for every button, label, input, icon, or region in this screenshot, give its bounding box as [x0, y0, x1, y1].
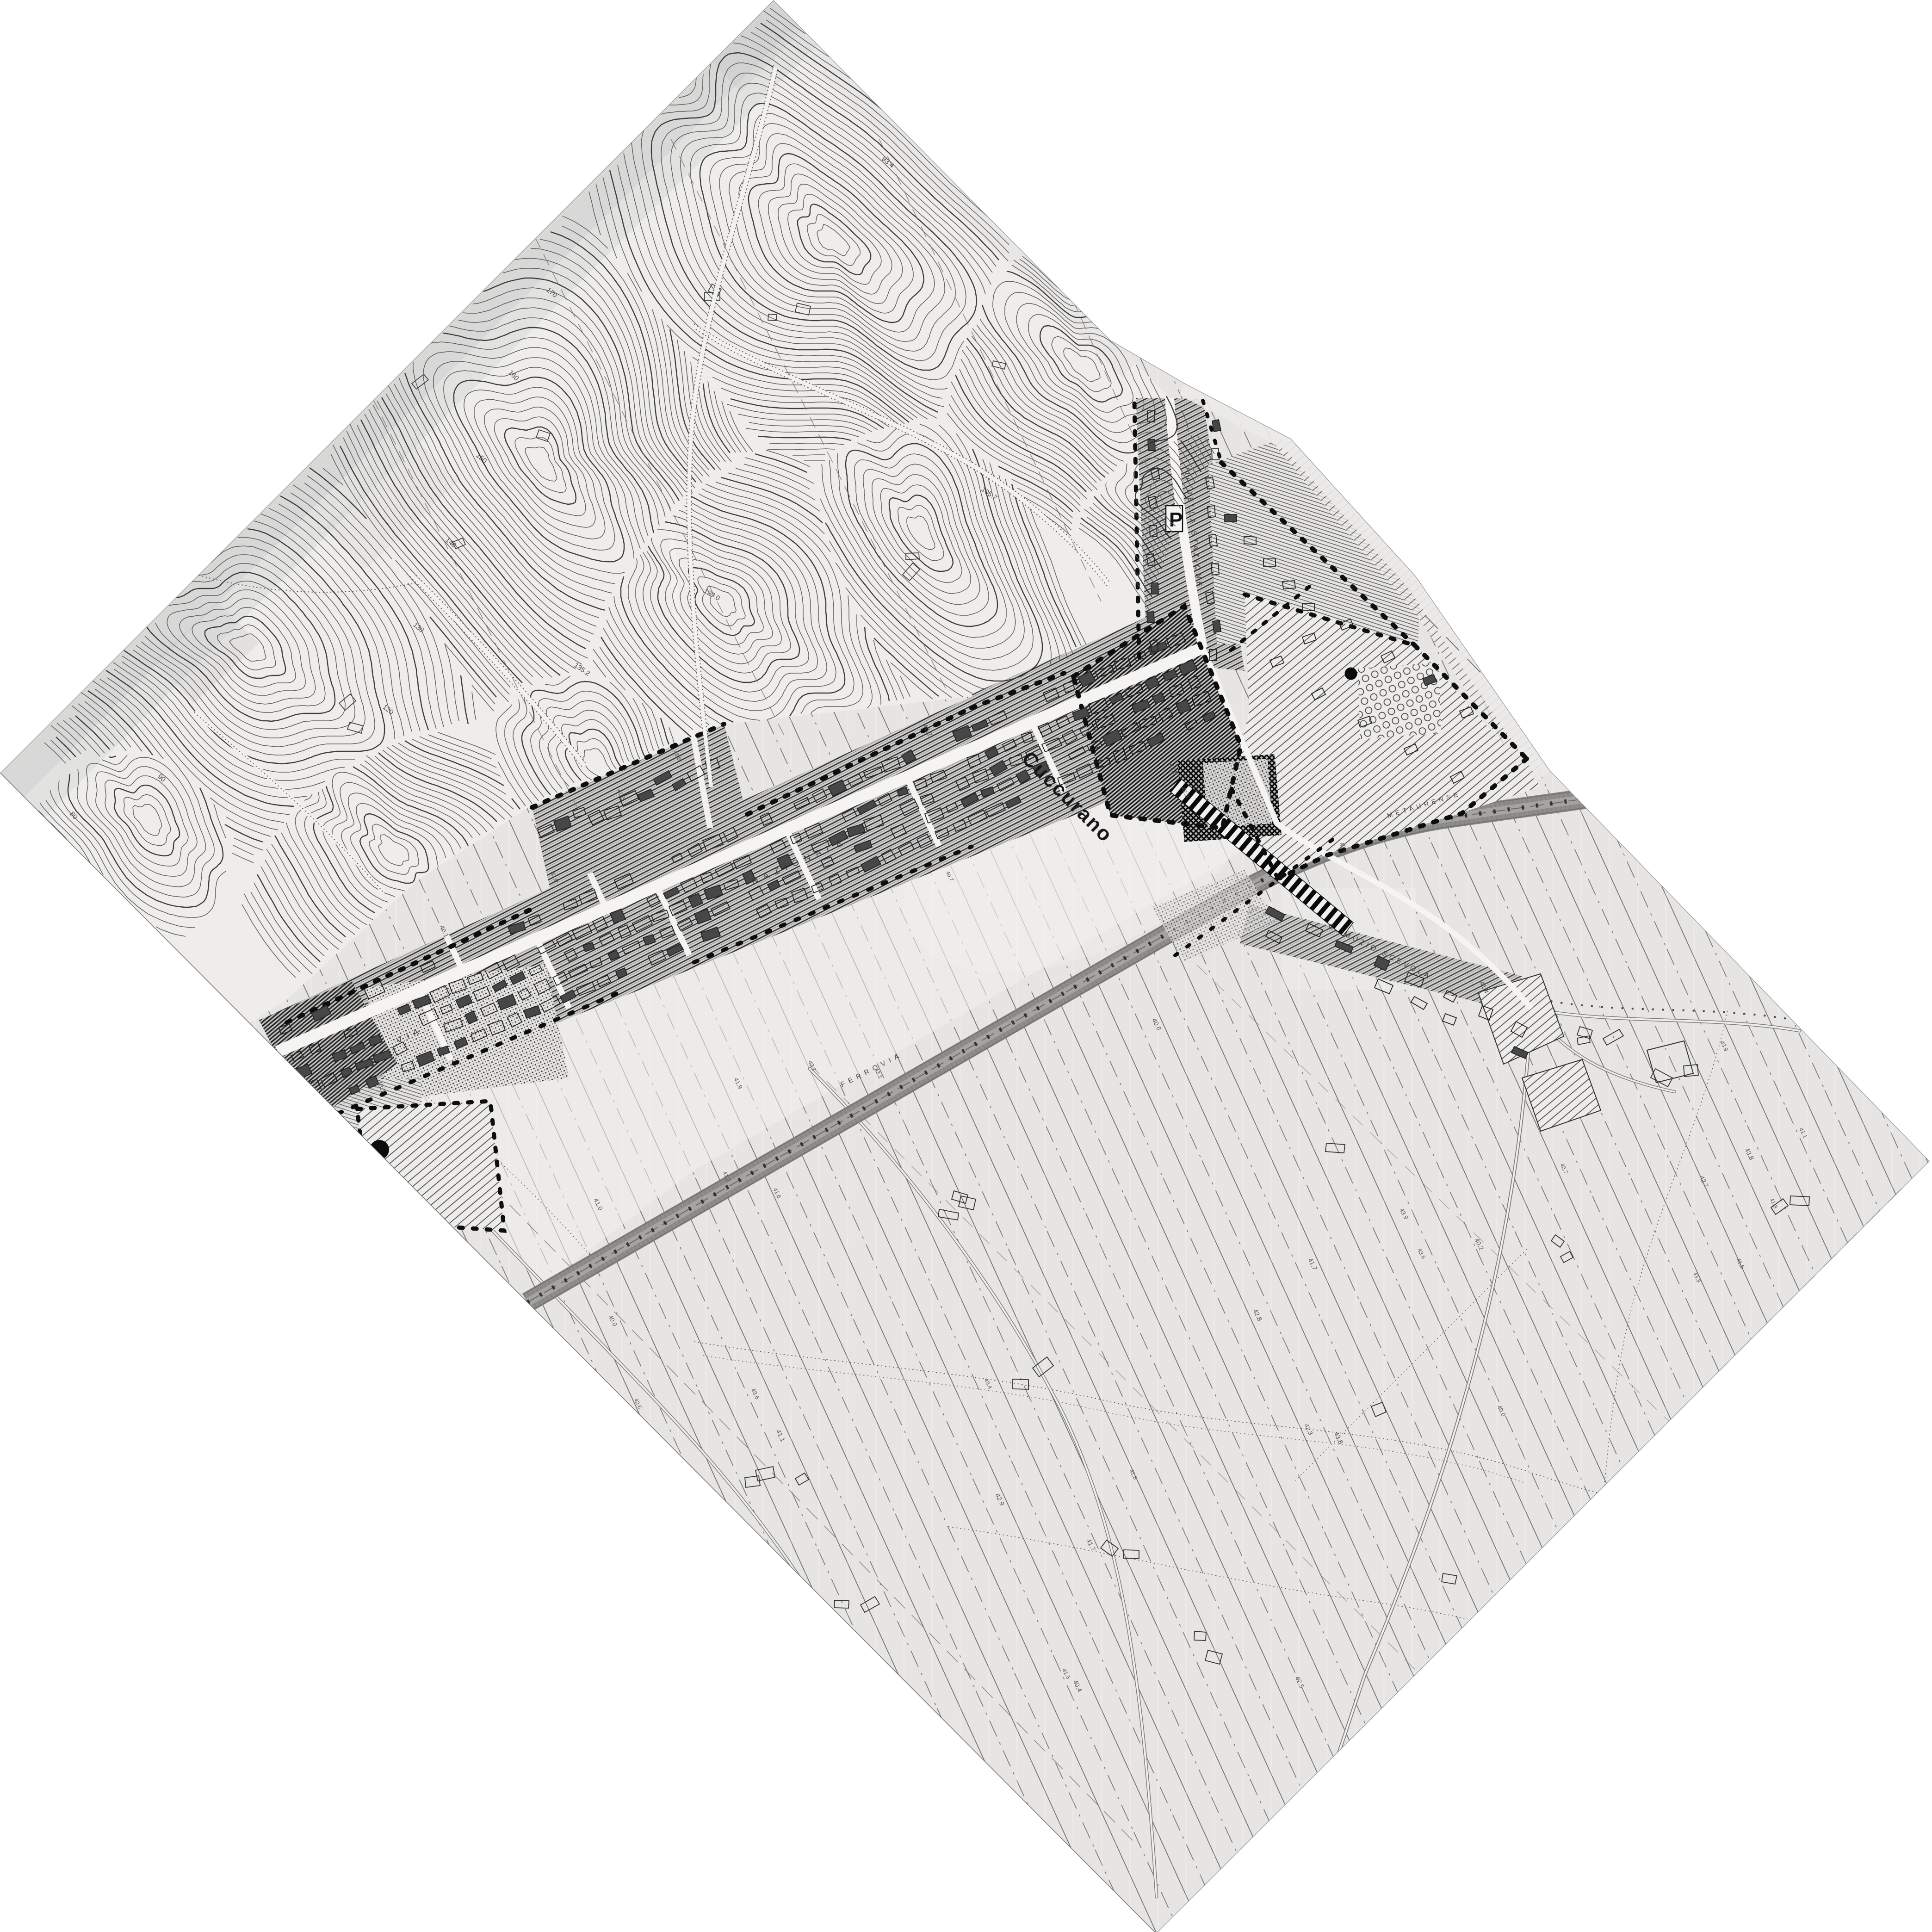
svg-text:P: P	[1169, 508, 1183, 531]
